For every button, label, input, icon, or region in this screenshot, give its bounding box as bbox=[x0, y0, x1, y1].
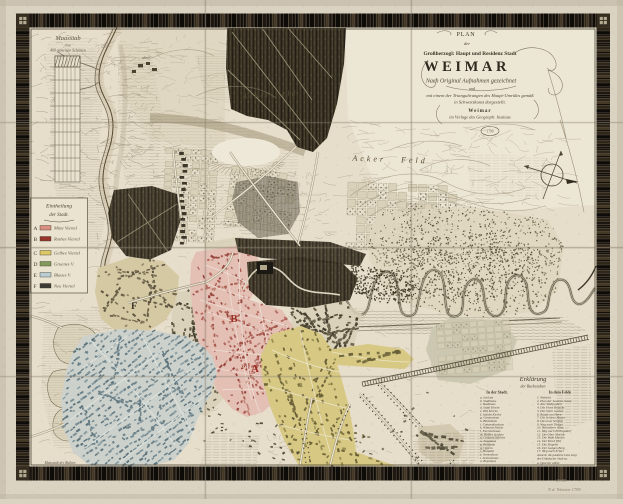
svg-text:Eintheilung: Eintheilung bbox=[45, 204, 72, 210]
svg-text:a. Quartier allein: a. Quartier allein bbox=[537, 461, 560, 465]
svg-text:u. Brauhaus: u. Brauhaus bbox=[480, 459, 497, 463]
svg-text:der Buchstaben: der Buchstaben bbox=[521, 384, 546, 389]
svg-text:in Schwarzkunst dargestellt.: in Schwarzkunst dargestellt. bbox=[454, 100, 506, 105]
svg-text:B: B bbox=[230, 313, 238, 325]
svg-text:und: und bbox=[469, 86, 476, 91]
svg-text:17.99: 17.99 bbox=[556, 478, 567, 483]
svg-text:Gruenes V.: Gruenes V. bbox=[54, 262, 75, 267]
svg-text:Großherzogl: Haupt und Residen: Großherzogl: Haupt und Residenz Stadt bbox=[423, 51, 516, 57]
svg-text:Neu Viertel: Neu Viertel bbox=[53, 284, 75, 289]
svg-text:In dem Felde: In dem Felde bbox=[549, 390, 572, 395]
svg-text:mit einem der Triangulirungen: mit einem der Triangulirungen des Haupt-… bbox=[426, 93, 534, 98]
svg-text:Nach Original Aufnahmen gezeic: Nach Original Aufnahmen gezeichnet bbox=[425, 78, 517, 85]
svg-text:C: C bbox=[34, 251, 38, 257]
svg-text:den Umfang der Stadt an.: den Umfang der Stadt an. bbox=[537, 457, 568, 461]
svg-text:Mitte Viertel: Mitte Viertel bbox=[53, 226, 78, 231]
svg-text:A: A bbox=[251, 363, 259, 375]
svg-text:Maasstab: Maasstab bbox=[54, 35, 81, 42]
svg-text:im Verlage des Geograph: Insti: im Verlage des Geograph: Instituts bbox=[449, 115, 511, 120]
svg-text:Maasstab der Ruthen: Maasstab der Ruthen bbox=[44, 461, 76, 465]
svg-text:In der Stadt.: In der Stadt. bbox=[486, 390, 508, 395]
svg-text:400 gemeinen Schritten: 400 gemeinen Schritten bbox=[50, 49, 86, 53]
svg-text:Weimar: Weimar bbox=[468, 109, 491, 114]
svg-text:von: von bbox=[65, 44, 70, 48]
svg-text:1799: 1799 bbox=[486, 130, 493, 134]
svg-text:der Stadt.: der Stadt. bbox=[49, 213, 68, 218]
svg-text:D: D bbox=[34, 262, 38, 268]
svg-text:Blaues V.: Blaues V. bbox=[54, 273, 72, 278]
svg-text:der: der bbox=[464, 41, 470, 46]
svg-text:PLAN: PLAN bbox=[457, 32, 476, 38]
svg-text:A: A bbox=[34, 226, 38, 232]
svg-text:B: B bbox=[34, 237, 38, 243]
svg-text:N d. Weimar 1799: N d. Weimar 1799 bbox=[547, 487, 581, 492]
svg-text:Gelbes Viertel: Gelbes Viertel bbox=[54, 251, 81, 256]
svg-text:F: F bbox=[34, 284, 37, 290]
svg-text:ober: ober bbox=[142, 55, 150, 60]
svg-text:WEIMAR: WEIMAR bbox=[424, 59, 510, 75]
svg-text:Rothes Viertel: Rothes Viertel bbox=[53, 237, 81, 242]
